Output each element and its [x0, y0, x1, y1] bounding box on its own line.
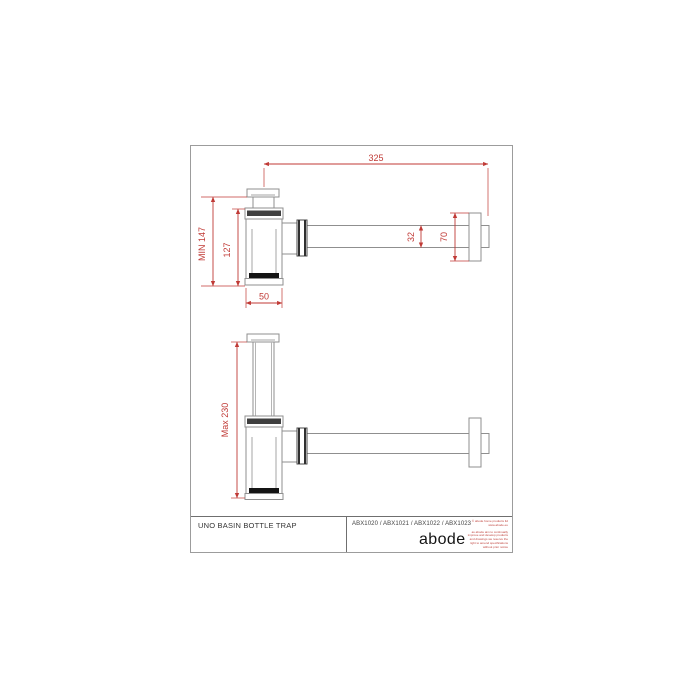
dim-flange-height: 70: [439, 232, 449, 242]
wall-flange: [469, 418, 481, 467]
fine-print-block: © abode home products ltd www.abode.eu a…: [450, 520, 508, 549]
basin-flange: [247, 189, 279, 197]
bottom-cap: [245, 494, 283, 500]
trap-body: [245, 427, 283, 500]
bottom-view-drawing: Max 230: [220, 334, 489, 500]
dim-body-width: 50: [259, 292, 269, 302]
wall-stub: [481, 434, 489, 454]
drawing-title: UNO BASIN BOTTLE TRAP: [198, 521, 346, 530]
fine-print-copyright: © abode home products ltd www.abode.eu: [450, 520, 508, 528]
seal-band: [249, 273, 279, 279]
inlet-neck-long: [253, 342, 274, 416]
wall-stub: [481, 226, 489, 248]
bottom-view-dimension-labels: Max 230: [220, 403, 230, 438]
basin-flange: [247, 334, 279, 342]
inlet-neck: [253, 197, 274, 209]
dim-min-height: MIN 147: [197, 227, 207, 261]
outlet-housing: [282, 431, 297, 462]
outlet-pipe: [307, 434, 469, 454]
bottom-cap: [245, 279, 283, 286]
collar-nut: [245, 208, 283, 219]
top-view-dimension-labels: 325 MIN 147 127 50 32 70: [197, 153, 449, 302]
bottle-trap-drawing: 325 MIN 147 127 50 32 70: [191, 146, 512, 516]
seal-band: [249, 488, 279, 494]
fine-print-disclaimer: as abode aim to continually improve and …: [450, 531, 508, 550]
drawing-sheet: 325 MIN 147 127 50 32 70: [190, 145, 513, 553]
dim-body-height: 127: [222, 242, 232, 257]
wall-flange: [469, 213, 481, 261]
dim-pipe-diameter: 32: [406, 232, 416, 242]
title-block-right-cell: ABX1020 / ABX1021 / ABX1022 / ABX1023 ab…: [346, 517, 512, 552]
top-view-drawing: 325 MIN 147 127 50 32 70: [197, 153, 489, 308]
outlet-housing: [282, 223, 297, 254]
compression-nut: [297, 428, 307, 464]
title-block: UNO BASIN BOTTLE TRAP ABX1020 / ABX1021 …: [191, 516, 512, 552]
trap-body: [245, 219, 283, 285]
dim-overall-length: 325: [368, 153, 383, 163]
title-block-left-cell: UNO BASIN BOTTLE TRAP: [191, 517, 346, 552]
dim-max-height: Max 230: [220, 403, 230, 438]
compression-nut: [297, 220, 307, 256]
collar-nut: [245, 416, 283, 427]
